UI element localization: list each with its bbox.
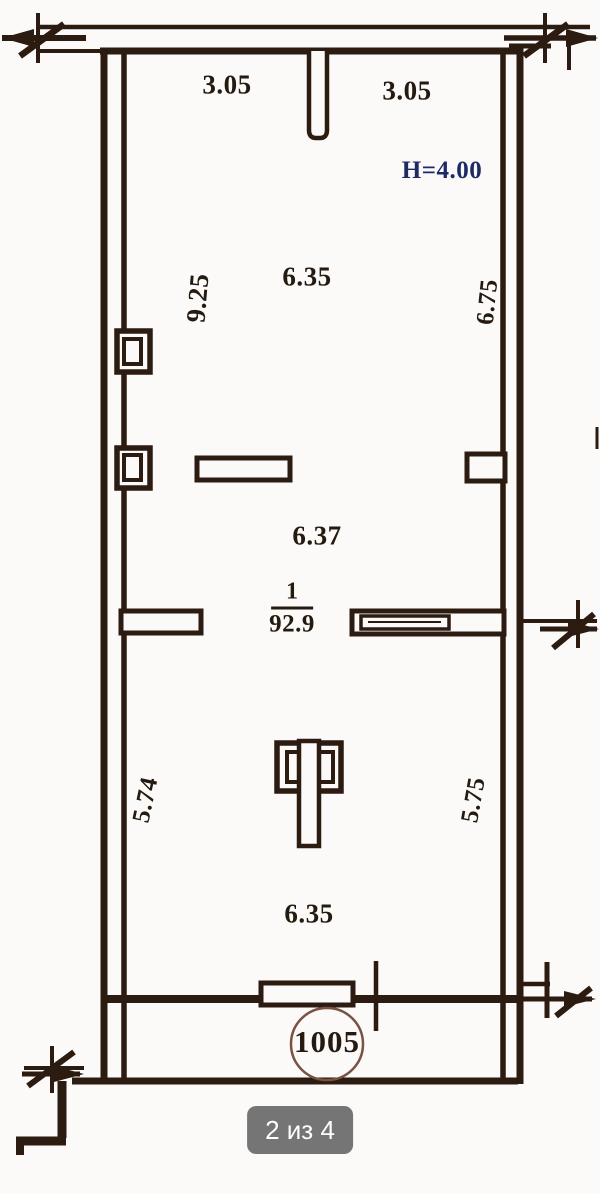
upper-partition-piece xyxy=(197,458,290,480)
dim-upper-right-height-label: 6.75 xyxy=(472,278,505,326)
dim-top-left-label: 3.05 xyxy=(202,70,251,101)
top-dimension-line xyxy=(2,13,598,70)
dim-lower-width-label: 6.35 xyxy=(284,899,333,930)
middle-right-dimension xyxy=(520,600,599,648)
pager-badge: 2 из 4 xyxy=(247,1106,353,1154)
bottom-right-dimension xyxy=(519,962,596,1018)
dim-upper-left-height-label: 9.25 xyxy=(180,272,215,324)
floorplan-image-viewport[interactable]: 3.05 3.05 H=4.00 9.25 6.35 6.75 6.37 5.7… xyxy=(0,0,600,1194)
dim-top-right-label: 3.05 xyxy=(382,76,431,107)
room-area-fraction: 1 92.9 xyxy=(269,580,315,637)
room-area-label: 92.9 xyxy=(269,610,315,637)
dim-upper-width-label: 6.35 xyxy=(282,262,331,293)
ceiling-height-label: H=4.00 xyxy=(402,157,482,185)
unit-number-label: 1005 xyxy=(294,1024,360,1060)
central-column-fixture xyxy=(277,741,341,846)
dim-middle-width-label: 6.37 xyxy=(292,521,341,552)
bottom-left-step xyxy=(16,1081,66,1155)
top-partition-stub xyxy=(309,51,327,138)
left-wall-duct-lower xyxy=(117,448,150,488)
room-index-label: 1 xyxy=(269,580,315,607)
right-wall-notch xyxy=(467,454,505,481)
left-wall-duct-upper xyxy=(117,331,150,372)
bottom-left-dimension xyxy=(22,1046,84,1093)
